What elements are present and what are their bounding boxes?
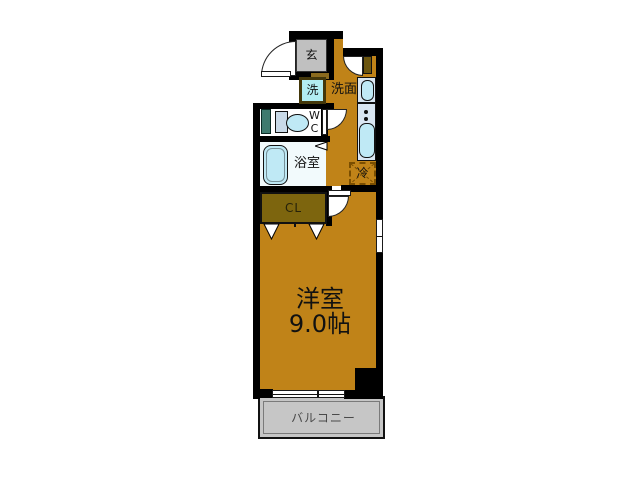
entrance-door-panel [261, 71, 291, 77]
stove-burner-icon [364, 117, 368, 121]
pipe-space [261, 109, 271, 134]
closet-door-icon [263, 224, 280, 241]
closet-door-icon [308, 224, 325, 241]
washroom-label: 洗面 [331, 83, 357, 97]
wall-bottom-right [344, 390, 383, 399]
closet-door-tick [294, 222, 296, 227]
closet-area: CL [260, 192, 327, 224]
main-room-size: 9.0帖 [289, 312, 351, 337]
floor-plan: バルコニー 玄 洗 洗面 W C 浴室 [0, 0, 640, 480]
sliding-door-tick [317, 391, 319, 397]
wc-label-c: C [308, 122, 321, 135]
main-room-floor [260, 370, 355, 392]
sliding-door-rail [273, 394, 344, 395]
counter-divider [357, 102, 376, 104]
laundry-label: 洗 [306, 84, 318, 97]
laundry-area: 洗 [299, 77, 326, 104]
window-divider [377, 236, 382, 237]
bathroom-label: 浴室 [294, 157, 320, 171]
main-room-label: 洋室 9.0帖 [278, 283, 362, 341]
genkan-area: 玄 [296, 39, 327, 72]
main-room-name: 洋室 [296, 287, 344, 312]
bathtub-rim [266, 148, 285, 182]
window-icon [376, 219, 383, 253]
sliding-door-icon [272, 390, 345, 398]
bathtub-icon [263, 145, 288, 185]
bathroom-door-icon [315, 141, 328, 151]
small-door-panel [363, 56, 372, 74]
stove-burner-icon [364, 110, 368, 114]
washbasin-sink-icon [361, 80, 374, 101]
refrigerator-space: 冷 [349, 162, 376, 185]
wall-genkan-top [289, 31, 343, 39]
toilet-icon [286, 114, 309, 132]
wc-label: W C [308, 109, 321, 135]
genkan-label: 玄 [305, 49, 317, 62]
balcony-label: バルコニー [260, 408, 387, 428]
closet-label: CL [285, 202, 302, 215]
wc-label-w: W [308, 109, 321, 122]
kitchen-sink-icon [359, 123, 375, 158]
balcony: バルコニー [258, 396, 385, 439]
refrigerator-label: 冷 [356, 167, 368, 180]
wall-left-outer [253, 103, 260, 399]
